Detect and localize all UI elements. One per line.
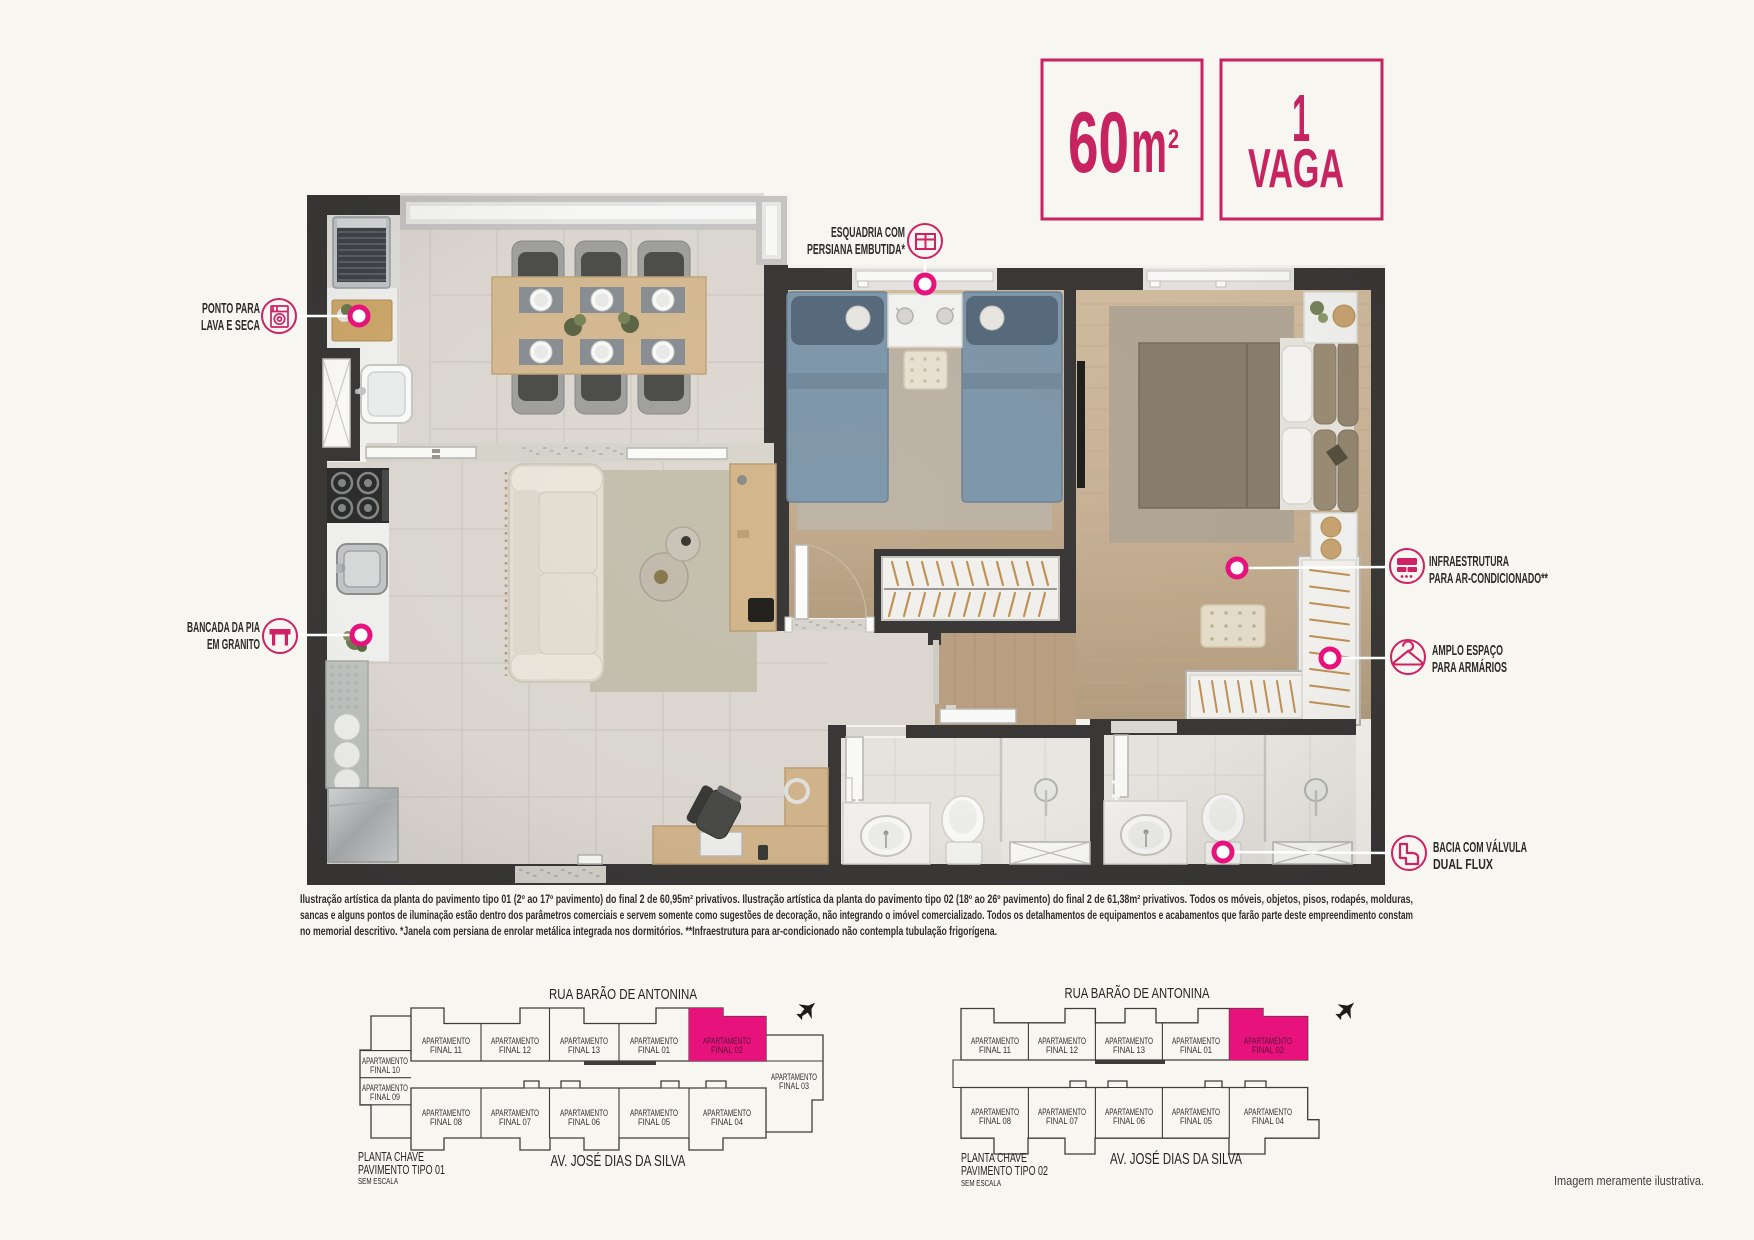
svg-text:FINAL 05: FINAL 05 (638, 1117, 670, 1127)
svg-text:DUAL FLUX: DUAL FLUX (1433, 856, 1493, 873)
svg-text:EM GRANITO: EM GRANITO (207, 636, 260, 653)
svg-text:PERSIANA EMBUTIDA*: PERSIANA EMBUTIDA* (807, 241, 905, 258)
svg-text:FINAL 01: FINAL 01 (1180, 1045, 1212, 1055)
svg-text:FINAL 05: FINAL 05 (1180, 1116, 1212, 1126)
svg-text:FINAL 02: FINAL 02 (1252, 1045, 1284, 1055)
svg-text:FINAL 01: FINAL 01 (638, 1045, 670, 1055)
svg-text:2: 2 (1168, 124, 1179, 154)
svg-text:SEM ESCALA: SEM ESCALA (358, 1177, 399, 1186)
svg-text:60: 60 (1068, 95, 1129, 191)
svg-text:FINAL 08: FINAL 08 (979, 1116, 1011, 1126)
svg-text:PONTO PARA: PONTO PARA (202, 300, 260, 317)
svg-text:AV. JOSÉ DIAS DA SILVA: AV. JOSÉ DIAS DA SILVA (551, 1151, 686, 1170)
svg-text:PAVIMENTO TIPO 01: PAVIMENTO TIPO 01 (358, 1162, 445, 1177)
svg-text:FINAL 04: FINAL 04 (711, 1117, 743, 1127)
svg-text:AV. JOSÉ DIAS DA SILVA: AV. JOSÉ DIAS DA SILVA (1110, 1149, 1242, 1168)
svg-text:INFRAESTRUTURA: INFRAESTRUTURA (1429, 553, 1509, 570)
svg-text:Imagem meramente ilustrativa.: Imagem meramente ilustrativa. (1554, 1173, 1704, 1188)
svg-text:RUA BARÃO DE ANTONINA: RUA BARÃO DE ANTONINA (1065, 985, 1210, 1002)
svg-text:FINAL 02: FINAL 02 (711, 1045, 743, 1055)
svg-text:FINAL 13: FINAL 13 (1113, 1045, 1145, 1055)
svg-text:FINAL 12: FINAL 12 (1046, 1045, 1078, 1055)
svg-text:FINAL 10: FINAL 10 (370, 1065, 400, 1075)
svg-text:PAVIMENTO TIPO 02: PAVIMENTO TIPO 02 (961, 1163, 1048, 1178)
svg-text:FINAL 07: FINAL 07 (1046, 1116, 1078, 1126)
svg-text:LAVA E SECA: LAVA E SECA (201, 317, 260, 334)
svg-text:FINAL 13: FINAL 13 (568, 1045, 600, 1055)
svg-text:RUA BARÃO DE ANTONINA: RUA BARÃO DE ANTONINA (549, 986, 697, 1003)
svg-text:sancas e alguns pontos de ilum: sancas e alguns pontos de iluminação est… (300, 910, 1413, 922)
svg-text:FINAL 04: FINAL 04 (1252, 1116, 1284, 1126)
svg-text:FINAL 06: FINAL 06 (1113, 1116, 1145, 1126)
svg-text:FINAL 08: FINAL 08 (430, 1117, 462, 1127)
svg-text:FINAL 09: FINAL 09 (370, 1092, 400, 1102)
svg-text:PARA AR-CONDICIONADO**: PARA AR-CONDICIONADO** (1429, 570, 1548, 587)
svg-text:BACIA COM VÁLVULA: BACIA COM VÁLVULA (1433, 839, 1527, 856)
svg-text:FINAL 11: FINAL 11 (979, 1045, 1011, 1055)
svg-text:FINAL 03: FINAL 03 (779, 1081, 809, 1091)
svg-text:FINAL 07: FINAL 07 (499, 1117, 531, 1127)
svg-text:FINAL 12: FINAL 12 (499, 1045, 531, 1055)
svg-text:PARA ARMÁRIOS: PARA ARMÁRIOS (1432, 659, 1507, 676)
svg-text:SEM ESCALA: SEM ESCALA (961, 1179, 1002, 1188)
svg-text:AMPLO ESPAÇO: AMPLO ESPAÇO (1432, 642, 1503, 659)
svg-text:no memorial descritivo. *Janel: no memorial descritivo. *Janela com pers… (300, 926, 997, 938)
svg-text:FINAL 11: FINAL 11 (430, 1045, 462, 1055)
svg-text:FINAL 06: FINAL 06 (568, 1117, 600, 1127)
svg-text:ESQUADRIA COM: ESQUADRIA COM (831, 224, 905, 241)
svg-text:Ilustração artística da planta: Ilustração artística da planta do pavime… (300, 894, 1413, 906)
svg-text:VAGA: VAGA (1248, 137, 1344, 199)
svg-text:m: m (1131, 104, 1167, 189)
svg-text:BANCADA DA PIA: BANCADA DA PIA (187, 619, 260, 636)
